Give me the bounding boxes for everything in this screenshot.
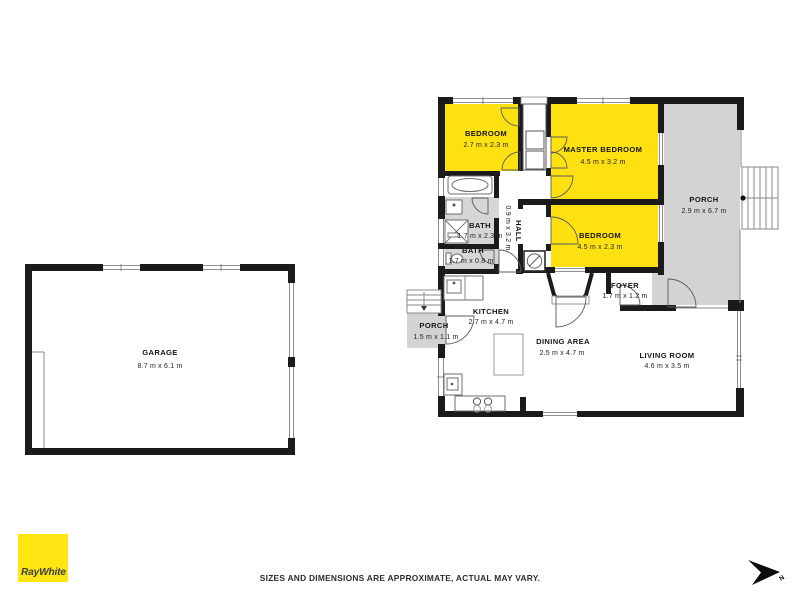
window — [437, 178, 445, 196]
bath-small-dims: 1.7 m x 0.8 m — [448, 258, 493, 265]
north-arrow: N — [748, 560, 786, 585]
living-dims: 4.6 m x 3.5 m — [644, 363, 689, 370]
bedroom-top-label: BEDROOM — [465, 129, 507, 138]
window — [453, 97, 513, 104]
garage-label: GARAGE — [142, 348, 177, 357]
bath-large-label: BATH — [469, 221, 491, 230]
sink — [446, 200, 462, 214]
garage-window — [103, 264, 140, 271]
hall-dims: 0.9 m x 3.2 m — [504, 205, 511, 250]
north-arrow-icon — [748, 560, 780, 585]
bedroom-mid-dims: 4.5 m x 2.3 m — [577, 244, 622, 251]
garage-window — [288, 283, 295, 357]
disclaimer-text: SIZES AND DIMENSIONS ARE APPROXIMATE, AC… — [260, 573, 540, 583]
foyer-dims: 1.7 m x 1.2 m — [602, 293, 647, 300]
window — [577, 97, 630, 104]
garage-dims: 8.7 m x 6.1 m — [137, 363, 182, 370]
hall-label: HALL — [514, 220, 523, 242]
kitchen-dims: 2.7 m x 4.7 m — [468, 319, 513, 326]
porch-right-dims: 2.9 m x 6.7 m — [681, 208, 726, 215]
garage-window — [203, 264, 240, 271]
garage-structure — [25, 264, 295, 455]
dining-label: DINING AREA — [536, 337, 590, 346]
water-heater — [524, 251, 545, 271]
stove — [455, 396, 505, 412]
floorplan-drawing: GARAGE 8.7 m x 6.1 m BEDROOM 2.7 m x 2.3… — [0, 0, 800, 600]
stairs-right — [740, 167, 778, 229]
dining-dims: 2.5 m x 4.7 m — [539, 350, 584, 357]
closet — [523, 104, 546, 170]
kitchen-label: KITCHEN — [473, 307, 509, 316]
master-bedroom-label: MASTER BEDROOM — [564, 145, 643, 154]
bedroom-top-dims: 2.7 m x 2.3 m — [463, 142, 508, 149]
dining-table — [494, 334, 523, 375]
foyer-label: FOYER — [611, 281, 639, 290]
kitchen-sink — [444, 374, 462, 395]
bath-large-dims: 1.7 m x 2.3 m — [457, 233, 502, 240]
window — [543, 411, 577, 417]
stairs-left — [407, 290, 441, 313]
bath-small-label: BATH — [462, 246, 484, 255]
raywhite-logo-text: RayWhite — [21, 567, 66, 578]
porch-right-label: PORCH — [689, 195, 718, 204]
living-label: LIVING ROOM — [640, 351, 695, 360]
porch-left-label: PORCH — [419, 321, 448, 330]
north-label: N — [778, 574, 786, 583]
window — [658, 133, 664, 165]
window — [437, 219, 445, 243]
floorplan-page: GARAGE 8.7 m x 6.1 m BEDROOM 2.7 m x 2.3… — [0, 0, 800, 600]
master-bedroom-dims: 4.5 m x 3.2 m — [580, 159, 625, 166]
window — [736, 311, 742, 388]
porch-left-dims: 1.5 m x 1.1 m — [413, 334, 458, 341]
kitchen-bench — [444, 276, 483, 300]
bedroom-mid-label: BEDROOM — [579, 231, 621, 240]
window — [437, 249, 445, 266]
garage-window — [288, 367, 295, 438]
window — [658, 205, 664, 242]
raywhite-logo: RayWhite — [18, 534, 68, 582]
